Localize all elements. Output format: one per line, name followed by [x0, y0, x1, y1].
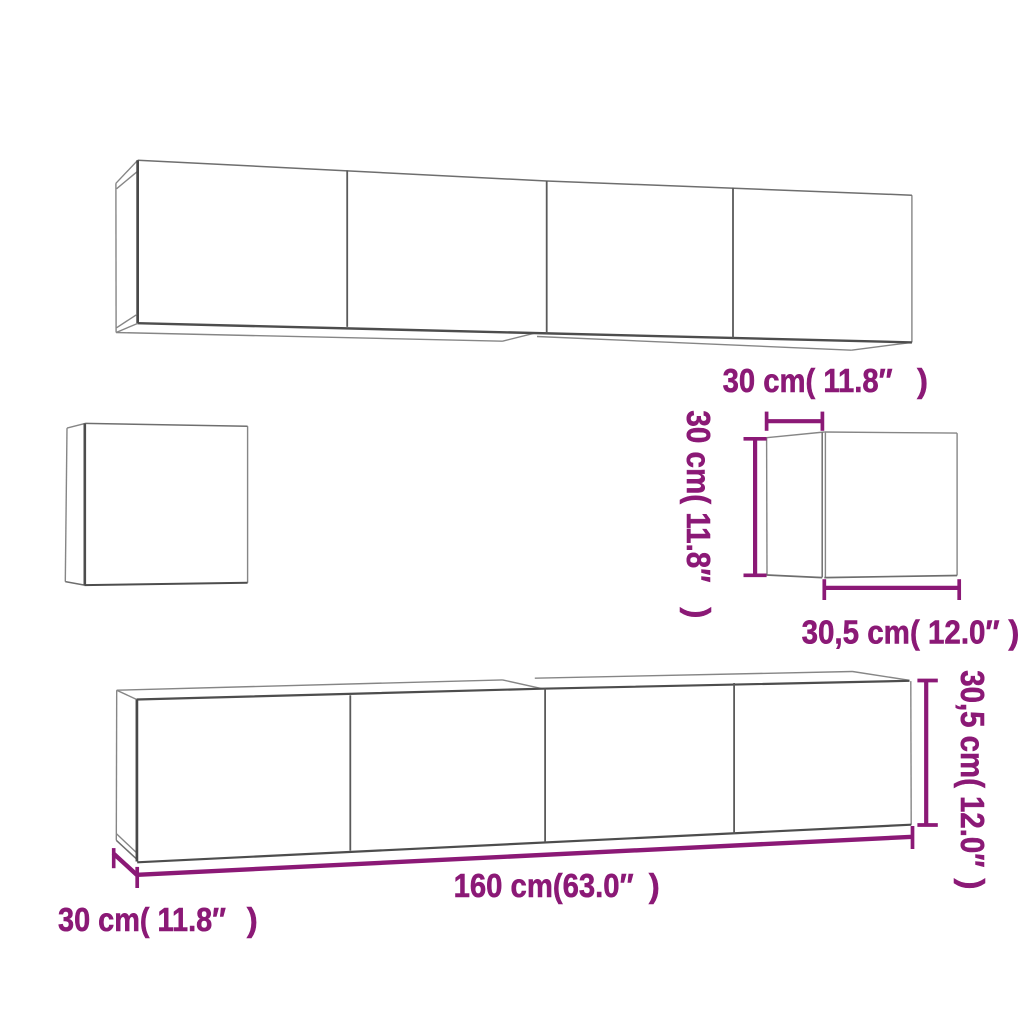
svg-text:30 cm( 11.8″: 30 cm( 11.8″	[723, 362, 893, 399]
svg-text:): )	[954, 879, 991, 890]
svg-text:): )	[680, 607, 717, 618]
svg-text:): )	[247, 901, 258, 938]
svg-text:): )	[649, 867, 660, 904]
svg-text:160 cm(63.0″: 160 cm(63.0″	[454, 867, 634, 904]
svg-text:): )	[917, 362, 928, 399]
svg-text:30 cm( 11.8″: 30 cm( 11.8″	[680, 410, 717, 582]
svg-text:30 cm( 11.8″: 30 cm( 11.8″	[58, 901, 226, 938]
svg-text:30,5 cm( 12.0″: 30,5 cm( 12.0″	[802, 613, 1000, 650]
svg-text:): )	[1008, 613, 1019, 650]
svg-text:30,5 cm( 12.0″: 30,5 cm( 12.0″	[954, 670, 991, 867]
